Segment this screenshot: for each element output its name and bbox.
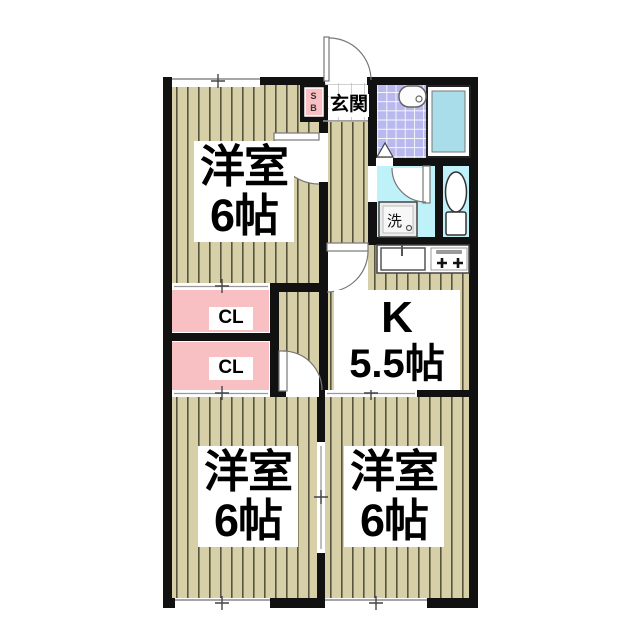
label-shoe-box: S B bbox=[305, 90, 322, 114]
washroom-doorway-gap bbox=[368, 166, 377, 202]
bathroom-door-gap bbox=[376, 158, 393, 166]
wall-kitchen-left bbox=[319, 292, 328, 397]
label-closet-upper: CL bbox=[209, 307, 253, 330]
doorway-western-room-top bbox=[319, 133, 328, 182]
room-name: 洋室 bbox=[194, 143, 294, 192]
label-closet-lower: CL bbox=[209, 357, 253, 380]
entrance-text: 玄関 bbox=[330, 94, 368, 115]
label-kitchen: K 5.5帖 bbox=[334, 290, 460, 390]
shoe-box-letter-s: S bbox=[305, 90, 322, 102]
label-entrance: 玄関 bbox=[329, 94, 369, 117]
entry-door-leaf bbox=[324, 37, 329, 81]
wall-kitchen-bottom-right bbox=[417, 390, 470, 397]
floor-plan: 洋室 6帖 K 5.5帖 洋室 6帖 洋室 6帖 CL CL 玄関 S B 洗 bbox=[0, 0, 640, 640]
toilet-tank bbox=[446, 212, 466, 235]
bathroom-sink bbox=[399, 86, 426, 107]
wall-outer-left bbox=[163, 77, 172, 608]
toilet-bowl bbox=[446, 172, 467, 212]
stove-grill bbox=[436, 250, 462, 254]
wall-bottom-rooms-divider-upper bbox=[317, 397, 325, 442]
corridor-door-leaf bbox=[279, 351, 287, 391]
label-laundry: 洗 bbox=[387, 210, 402, 231]
wall-closet-divider bbox=[172, 333, 279, 341]
label-western-room-bottom-right: 洋室 6帖 bbox=[344, 446, 444, 547]
wall-top-right bbox=[367, 77, 470, 85]
room-top-door-leaf bbox=[274, 133, 319, 140]
room-size: 5.5帖 bbox=[334, 342, 460, 387]
room-size: 6帖 bbox=[344, 497, 444, 546]
shoe-box-letter-b: B bbox=[305, 102, 322, 114]
wall-washroom-kitchen bbox=[368, 237, 469, 245]
floor-hallway bbox=[323, 122, 368, 247]
room-name: 洋室 bbox=[198, 448, 298, 497]
wall-top-mid bbox=[260, 77, 325, 85]
closet-text: CL bbox=[218, 307, 243, 328]
wall-bottom-mid bbox=[270, 598, 325, 608]
bathroom-sink-drain bbox=[416, 96, 422, 102]
wall-hallway-right-lower bbox=[368, 202, 377, 243]
entry-door-arc bbox=[329, 38, 371, 80]
closet-text: CL bbox=[218, 357, 243, 378]
kitchen-door-leaf bbox=[327, 243, 368, 251]
wall-bottom-right bbox=[427, 598, 478, 608]
room-size: 6帖 bbox=[198, 497, 298, 546]
laundry-text: 洗 bbox=[387, 213, 402, 230]
wall-bottom-left-corner bbox=[163, 598, 175, 608]
room-name: 洋室 bbox=[344, 448, 444, 497]
bathtub-water bbox=[432, 91, 465, 152]
wall-bottom-rooms-divider-lower bbox=[317, 553, 325, 598]
wall-toilet-partition bbox=[435, 166, 443, 237]
washroom-door-leaf bbox=[423, 166, 430, 203]
room-name: K bbox=[334, 293, 460, 342]
wall-hallway-right-upper bbox=[368, 85, 377, 166]
label-western-room-bottom-left: 洋室 6帖 bbox=[198, 446, 298, 547]
doorway-corridor bbox=[286, 390, 319, 397]
wall-room-top-right-lower bbox=[319, 182, 328, 292]
room-size: 6帖 bbox=[194, 192, 294, 241]
label-western-room-top: 洋室 6帖 bbox=[194, 141, 294, 242]
wall-bathroom-bottom bbox=[393, 158, 469, 166]
